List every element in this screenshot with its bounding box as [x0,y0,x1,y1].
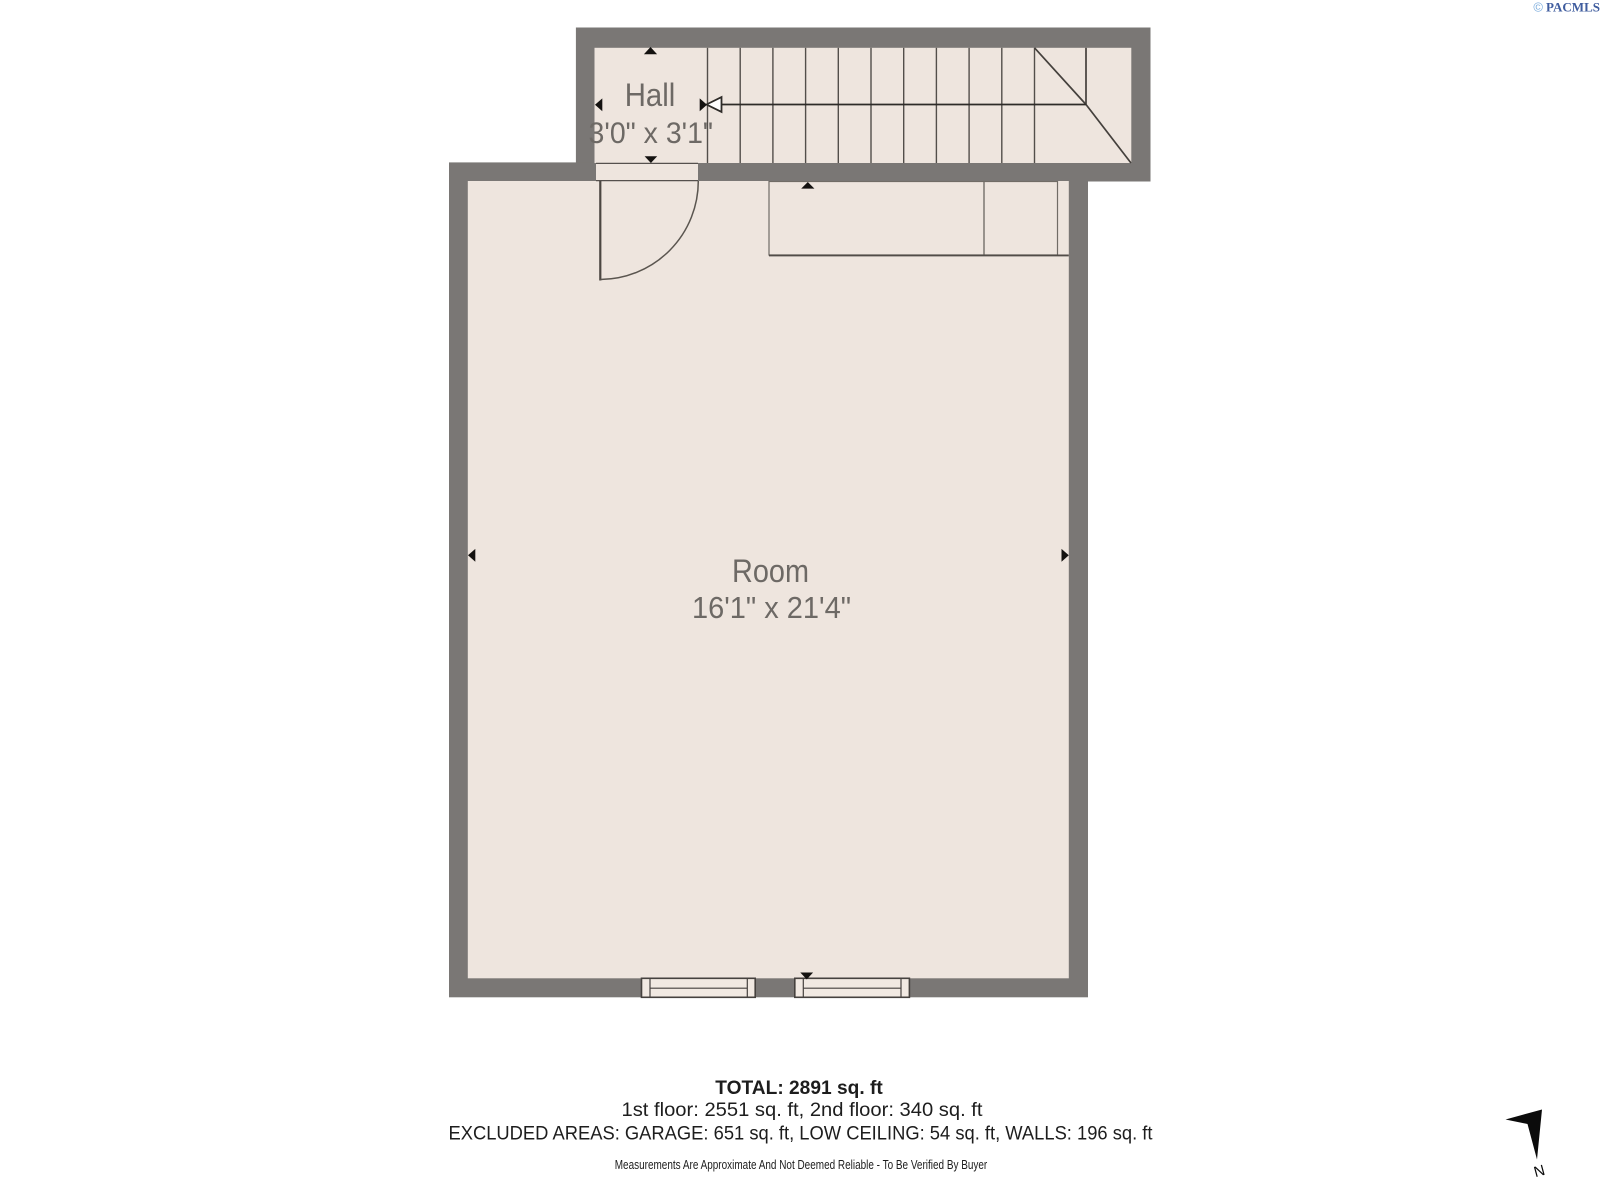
svg-text:Hall: Hall [625,77,676,113]
svg-text:Room: Room [732,553,809,589]
svg-text:1st floor: 2551 sq. ft, 2nd fl: 1st floor: 2551 sq. ft, 2nd floor: 340 s… [622,1099,984,1121]
svg-text:PACMLS: PACMLS [1546,1,1600,15]
svg-text:©: © [1533,0,1543,15]
svg-text:Measurements Are Approximate A: Measurements Are Approximate And Not Dee… [615,1158,988,1172]
svg-text:3'0" x 3'1": 3'0" x 3'1" [589,117,714,150]
svg-text:16'1" x 21'4": 16'1" x 21'4" [692,590,851,625]
svg-text:TOTAL: 2891 sq. ft: TOTAL: 2891 sq. ft [715,1077,883,1099]
svg-text:EXCLUDED AREAS: GARAGE: 651 sq: EXCLUDED AREAS: GARAGE: 651 sq. ft, LOW … [449,1123,1154,1145]
